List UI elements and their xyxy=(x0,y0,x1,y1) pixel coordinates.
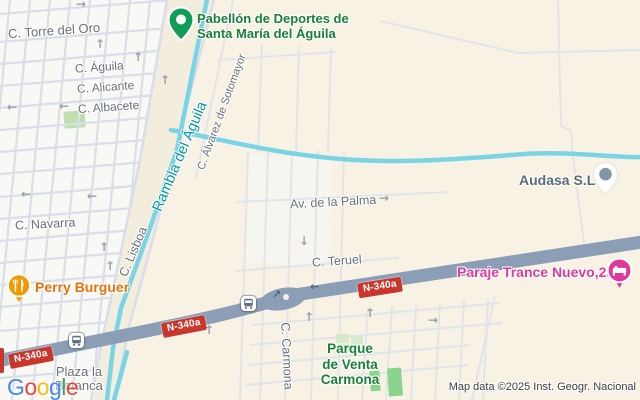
light-block xyxy=(242,154,332,268)
business-pin-icon[interactable] xyxy=(592,161,619,196)
one-way-arrow-icon: ← xyxy=(87,190,97,202)
google-logo-letter: g xyxy=(49,374,61,400)
bus-stop-icon[interactable] xyxy=(69,333,84,348)
one-way-arrow-icon: ↑ xyxy=(99,241,109,253)
poi-label-paraje-trance[interactable]: Paraje Trance Nuevo,23 xyxy=(457,265,614,280)
google-logo-letter: e xyxy=(66,374,78,400)
roundabout-center xyxy=(283,294,289,300)
one-way-arrow-icon: ← xyxy=(59,100,69,112)
road-shield-clipped xyxy=(0,348,4,373)
restaurant-pin-icon[interactable] xyxy=(6,273,32,305)
google-logo-letter: G xyxy=(7,374,24,400)
one-way-arrow-icon: ↓ xyxy=(299,235,309,247)
one-way-arrow-icon: ↑ xyxy=(304,311,314,323)
lodging-pin-icon[interactable] xyxy=(606,257,633,290)
bus-stop-icon[interactable] xyxy=(241,296,256,311)
poi-label-line: Carmona xyxy=(310,372,390,388)
one-way-arrow-icon: ← xyxy=(7,101,17,113)
street-label-carmona: C. Carmona xyxy=(277,322,294,390)
highway-direction-arrow-icon: ← xyxy=(310,281,319,292)
one-way-arrow-icon: → xyxy=(428,314,438,326)
map-attribution: Map data ©2025 Inst. Geogr. Nacional xyxy=(449,381,636,393)
poi-label-line: Pabellón de Deportes de xyxy=(197,11,349,26)
google-map-viewport[interactable]: C. Torre del Oro C. Águila C. Alicante C… xyxy=(0,0,640,400)
poi-label-line: Santa María del Águila xyxy=(197,26,349,41)
one-way-arrow-icon: → xyxy=(379,192,389,204)
poi-label-perry-burguer[interactable]: Perry Burguer xyxy=(35,280,129,295)
highway-direction-arrow-icon: ↗ xyxy=(272,289,281,300)
poi-label-parque-venta-carmona[interactable]: Parque de Venta Carmona xyxy=(310,341,390,388)
one-way-arrow-icon: ↑ xyxy=(160,74,170,86)
sports-pavilion-pin-icon[interactable] xyxy=(167,6,195,42)
one-way-arrow-icon: ← xyxy=(21,188,31,200)
poi-label-line: de Venta xyxy=(310,357,390,373)
google-logo-letter: o xyxy=(24,374,36,400)
one-way-arrow-icon: ↑ xyxy=(133,51,143,63)
one-way-arrow-icon: ↑ xyxy=(365,307,375,319)
one-way-arrow-icon: ↑ xyxy=(204,324,214,336)
poi-label-pabellon[interactable]: Pabellón de Deportes de Santa María del … xyxy=(197,11,349,41)
poi-label-line: Parque xyxy=(310,341,390,357)
google-logo-letter: o xyxy=(37,374,49,400)
one-way-arrow-icon: → xyxy=(76,0,86,10)
one-way-arrow-icon: ↑ xyxy=(95,38,105,50)
google-logo[interactable]: Google xyxy=(7,374,78,400)
one-way-arrow-icon: ↑ xyxy=(105,260,115,272)
poi-label-audasa[interactable]: Audasa S.L xyxy=(519,173,595,188)
